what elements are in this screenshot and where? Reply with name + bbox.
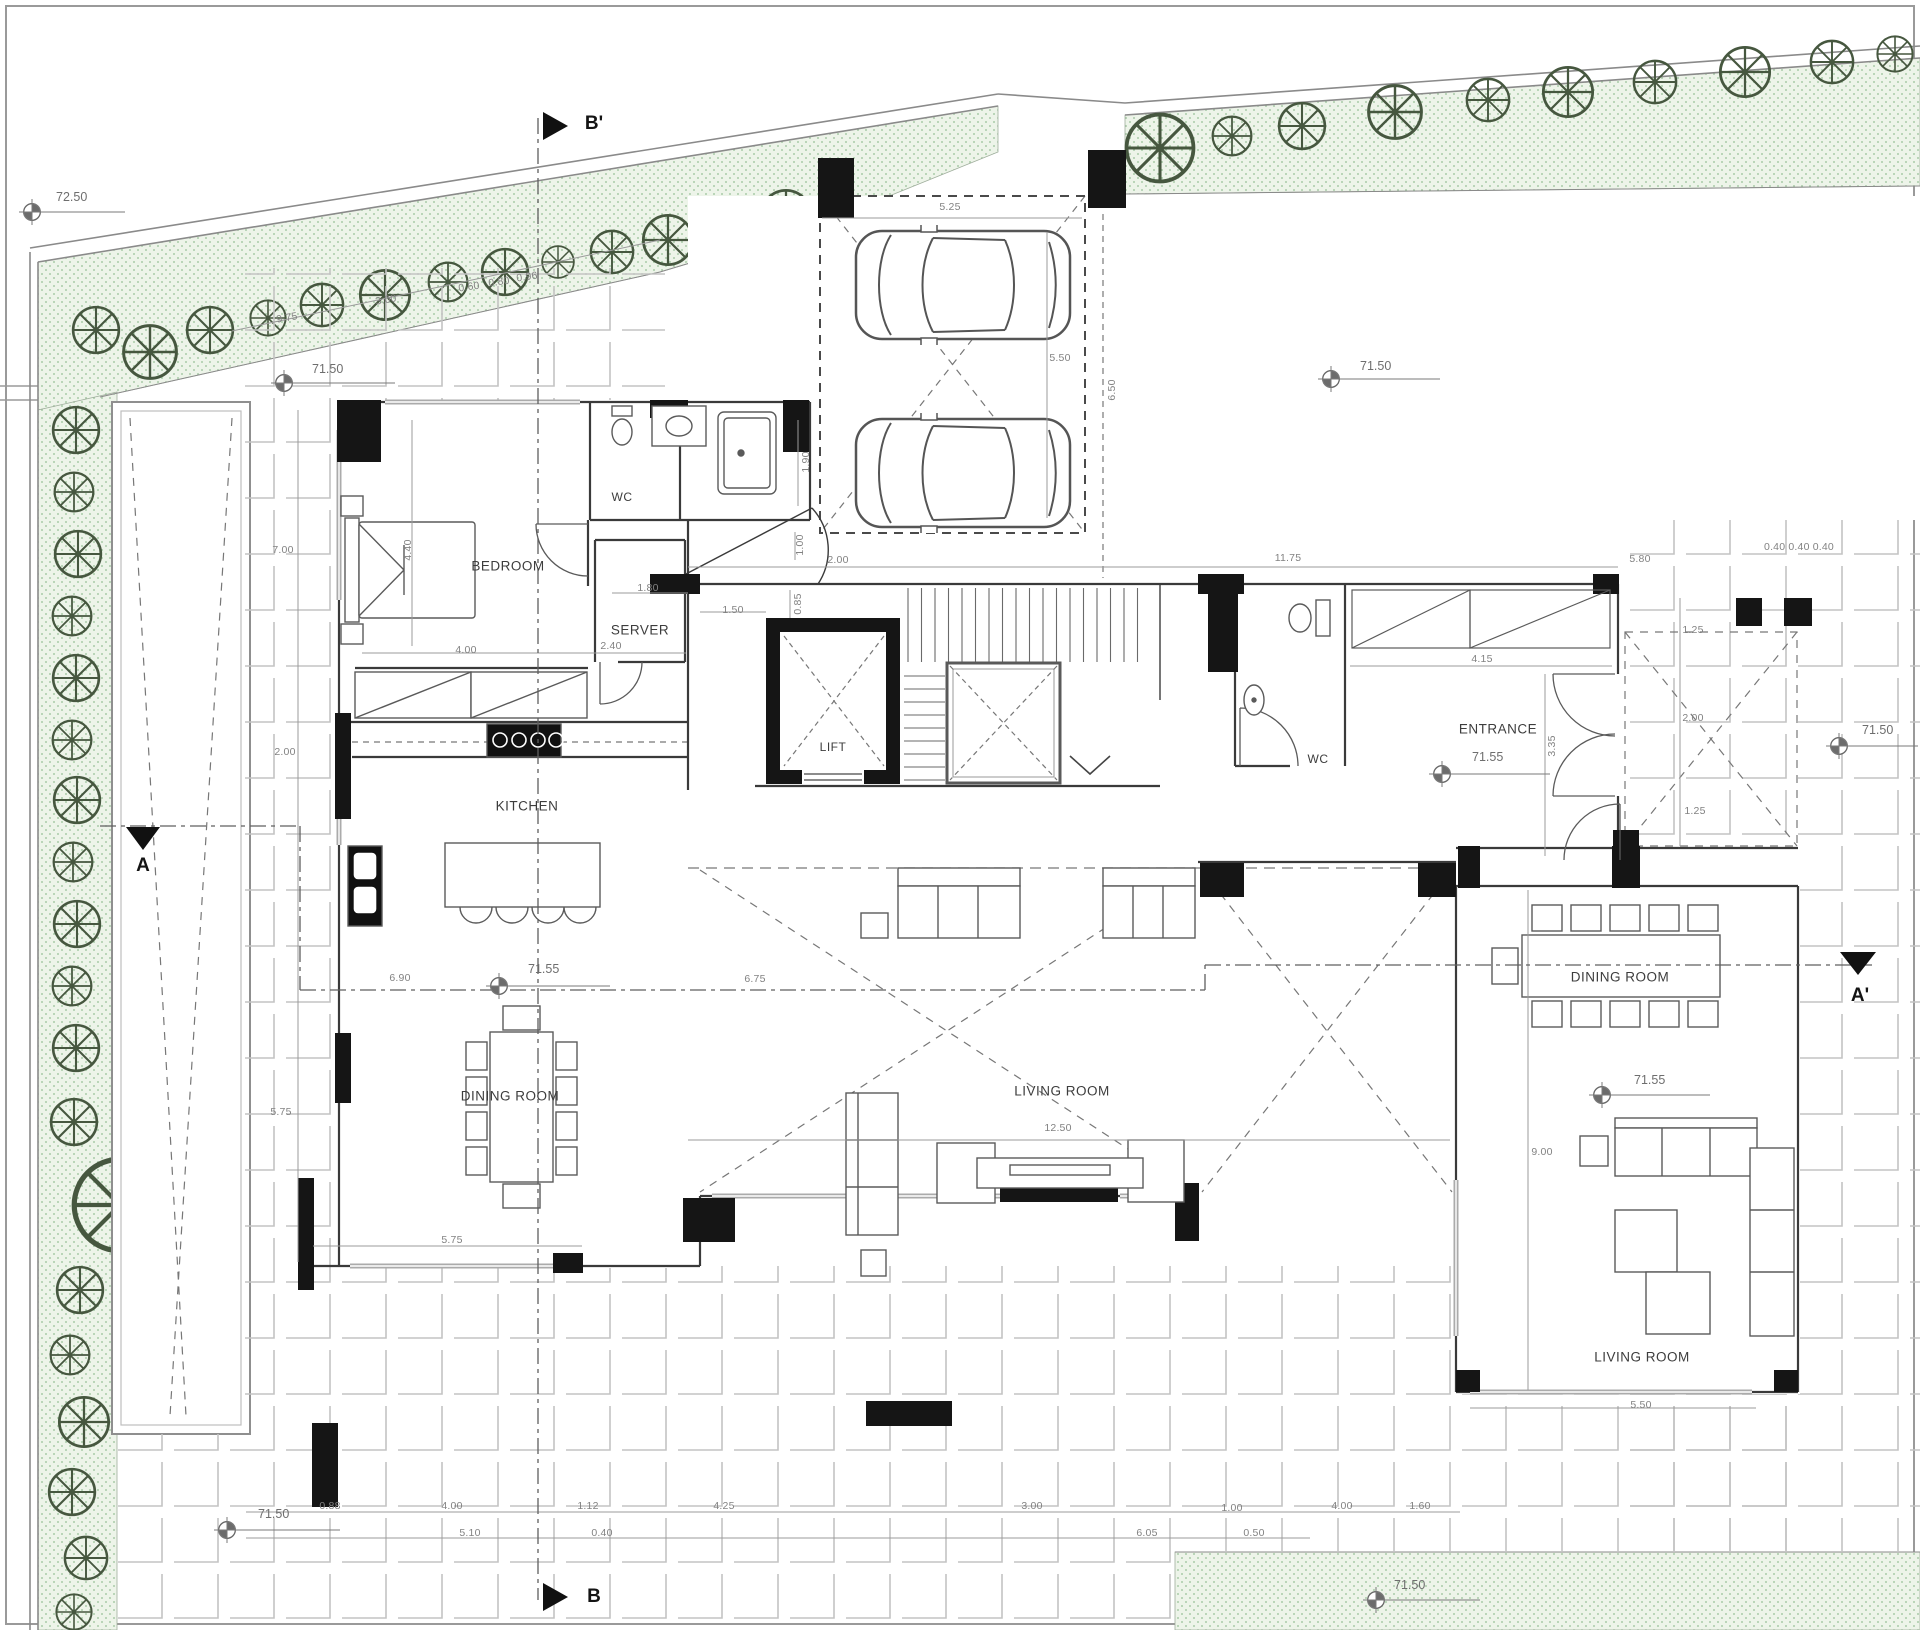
room-label-living-center: LIVING ROOM <box>1014 1084 1110 1099</box>
dimension: 1.80 <box>637 582 658 594</box>
dimension: 4.00 <box>1331 1500 1352 1512</box>
room-label-living-right: LIVING ROOM <box>1594 1350 1690 1365</box>
room-label-dining-left: DINING ROOM <box>461 1089 560 1104</box>
room-label-server: SERVER <box>611 623 669 638</box>
dimension: 1.00 <box>1221 1502 1242 1514</box>
level-value: 71.50 <box>312 362 343 376</box>
dimension: 0.85 <box>792 593 804 614</box>
dimension: 1.25 <box>1684 805 1705 817</box>
dimension: 4.25 <box>713 1500 734 1512</box>
dimension: 6.05 <box>1136 1527 1157 1539</box>
dimension: 4.00 <box>455 644 476 656</box>
dimension: 0.88 <box>319 1500 340 1512</box>
dimension: 6.75 <box>744 973 765 985</box>
level-value: 71.50 <box>1394 1578 1425 1592</box>
dimension: 4.00 <box>441 1500 462 1512</box>
dimension: 11.75 <box>1275 552 1302 564</box>
room-label-lift: LIFT <box>820 740 847 754</box>
dimension: 1.50 <box>722 604 743 616</box>
section-marker-b: B <box>587 1586 601 1608</box>
dimension: 4.40 <box>402 539 414 560</box>
dimension: 2.00 <box>274 746 295 758</box>
section-marker-a: A <box>136 855 150 877</box>
pool <box>112 402 250 1434</box>
level-value: 71.55 <box>528 962 559 976</box>
level-value: 71.55 <box>1472 750 1503 764</box>
dimension: 12.50 <box>1044 1122 1071 1134</box>
dimension: 0.50 <box>1243 1527 1264 1539</box>
floor-plan-page: BEDROOM WC SERVER KITCHEN DINING ROOM LI… <box>0 0 1920 1630</box>
dimension: 0.40 0.40 0.40 <box>1764 541 1834 553</box>
dimension: 5.10 <box>459 1527 480 1539</box>
room-label-wc-top: WC <box>612 490 633 504</box>
room-label-bedroom: BEDROOM <box>471 559 544 574</box>
dimension: 3.00 <box>1021 1500 1042 1512</box>
dimension: 5.75 <box>441 1234 462 1246</box>
level-value: 71.50 <box>1862 723 1893 737</box>
dimension: 5.50 <box>1049 352 1070 364</box>
dimension: 1.25 <box>1682 624 1703 636</box>
dimension: 7.00 <box>272 544 293 556</box>
dimension: 2.00 <box>1682 712 1703 724</box>
level-value: 72.50 <box>56 190 87 204</box>
dimension: 1.90 <box>800 451 812 472</box>
floor-plan-drawing <box>0 0 1920 1630</box>
level-value: 71.50 <box>258 1507 289 1521</box>
dimension: 2.00 <box>827 554 848 566</box>
dimension: 5.80 <box>1629 553 1650 565</box>
section-marker-a-prime: A' <box>1851 985 1869 1007</box>
level-value: 71.50 <box>1360 359 1391 373</box>
dimension: 6.50 <box>1106 379 1118 400</box>
dimension: 1.00 <box>794 534 806 555</box>
dimension: 6.90 <box>389 972 410 984</box>
dimension: 9.00 <box>1531 1146 1552 1158</box>
dimension: 1.12 <box>577 1500 598 1512</box>
dimension: 5.75 <box>270 1106 291 1118</box>
dimension: 4.15 <box>1471 653 1492 665</box>
room-label-entrance: ENTRANCE <box>1459 722 1537 737</box>
room-label-dining-right: DINING ROOM <box>1571 970 1670 985</box>
level-value: 71.55 <box>1634 1073 1665 1087</box>
dimension: 2.40 <box>600 640 621 652</box>
dimension: 3.35 <box>1546 735 1558 756</box>
dimension: 5.25 <box>939 201 960 213</box>
room-label-wc-entrance: WC <box>1308 752 1329 766</box>
section-marker-b-prime: B' <box>585 113 603 135</box>
dimension: 1.60 <box>1409 1500 1430 1512</box>
dimension: 0.40 <box>591 1527 612 1539</box>
dimension: 5.50 <box>1630 1399 1651 1411</box>
room-label-kitchen: KITCHEN <box>496 799 559 814</box>
